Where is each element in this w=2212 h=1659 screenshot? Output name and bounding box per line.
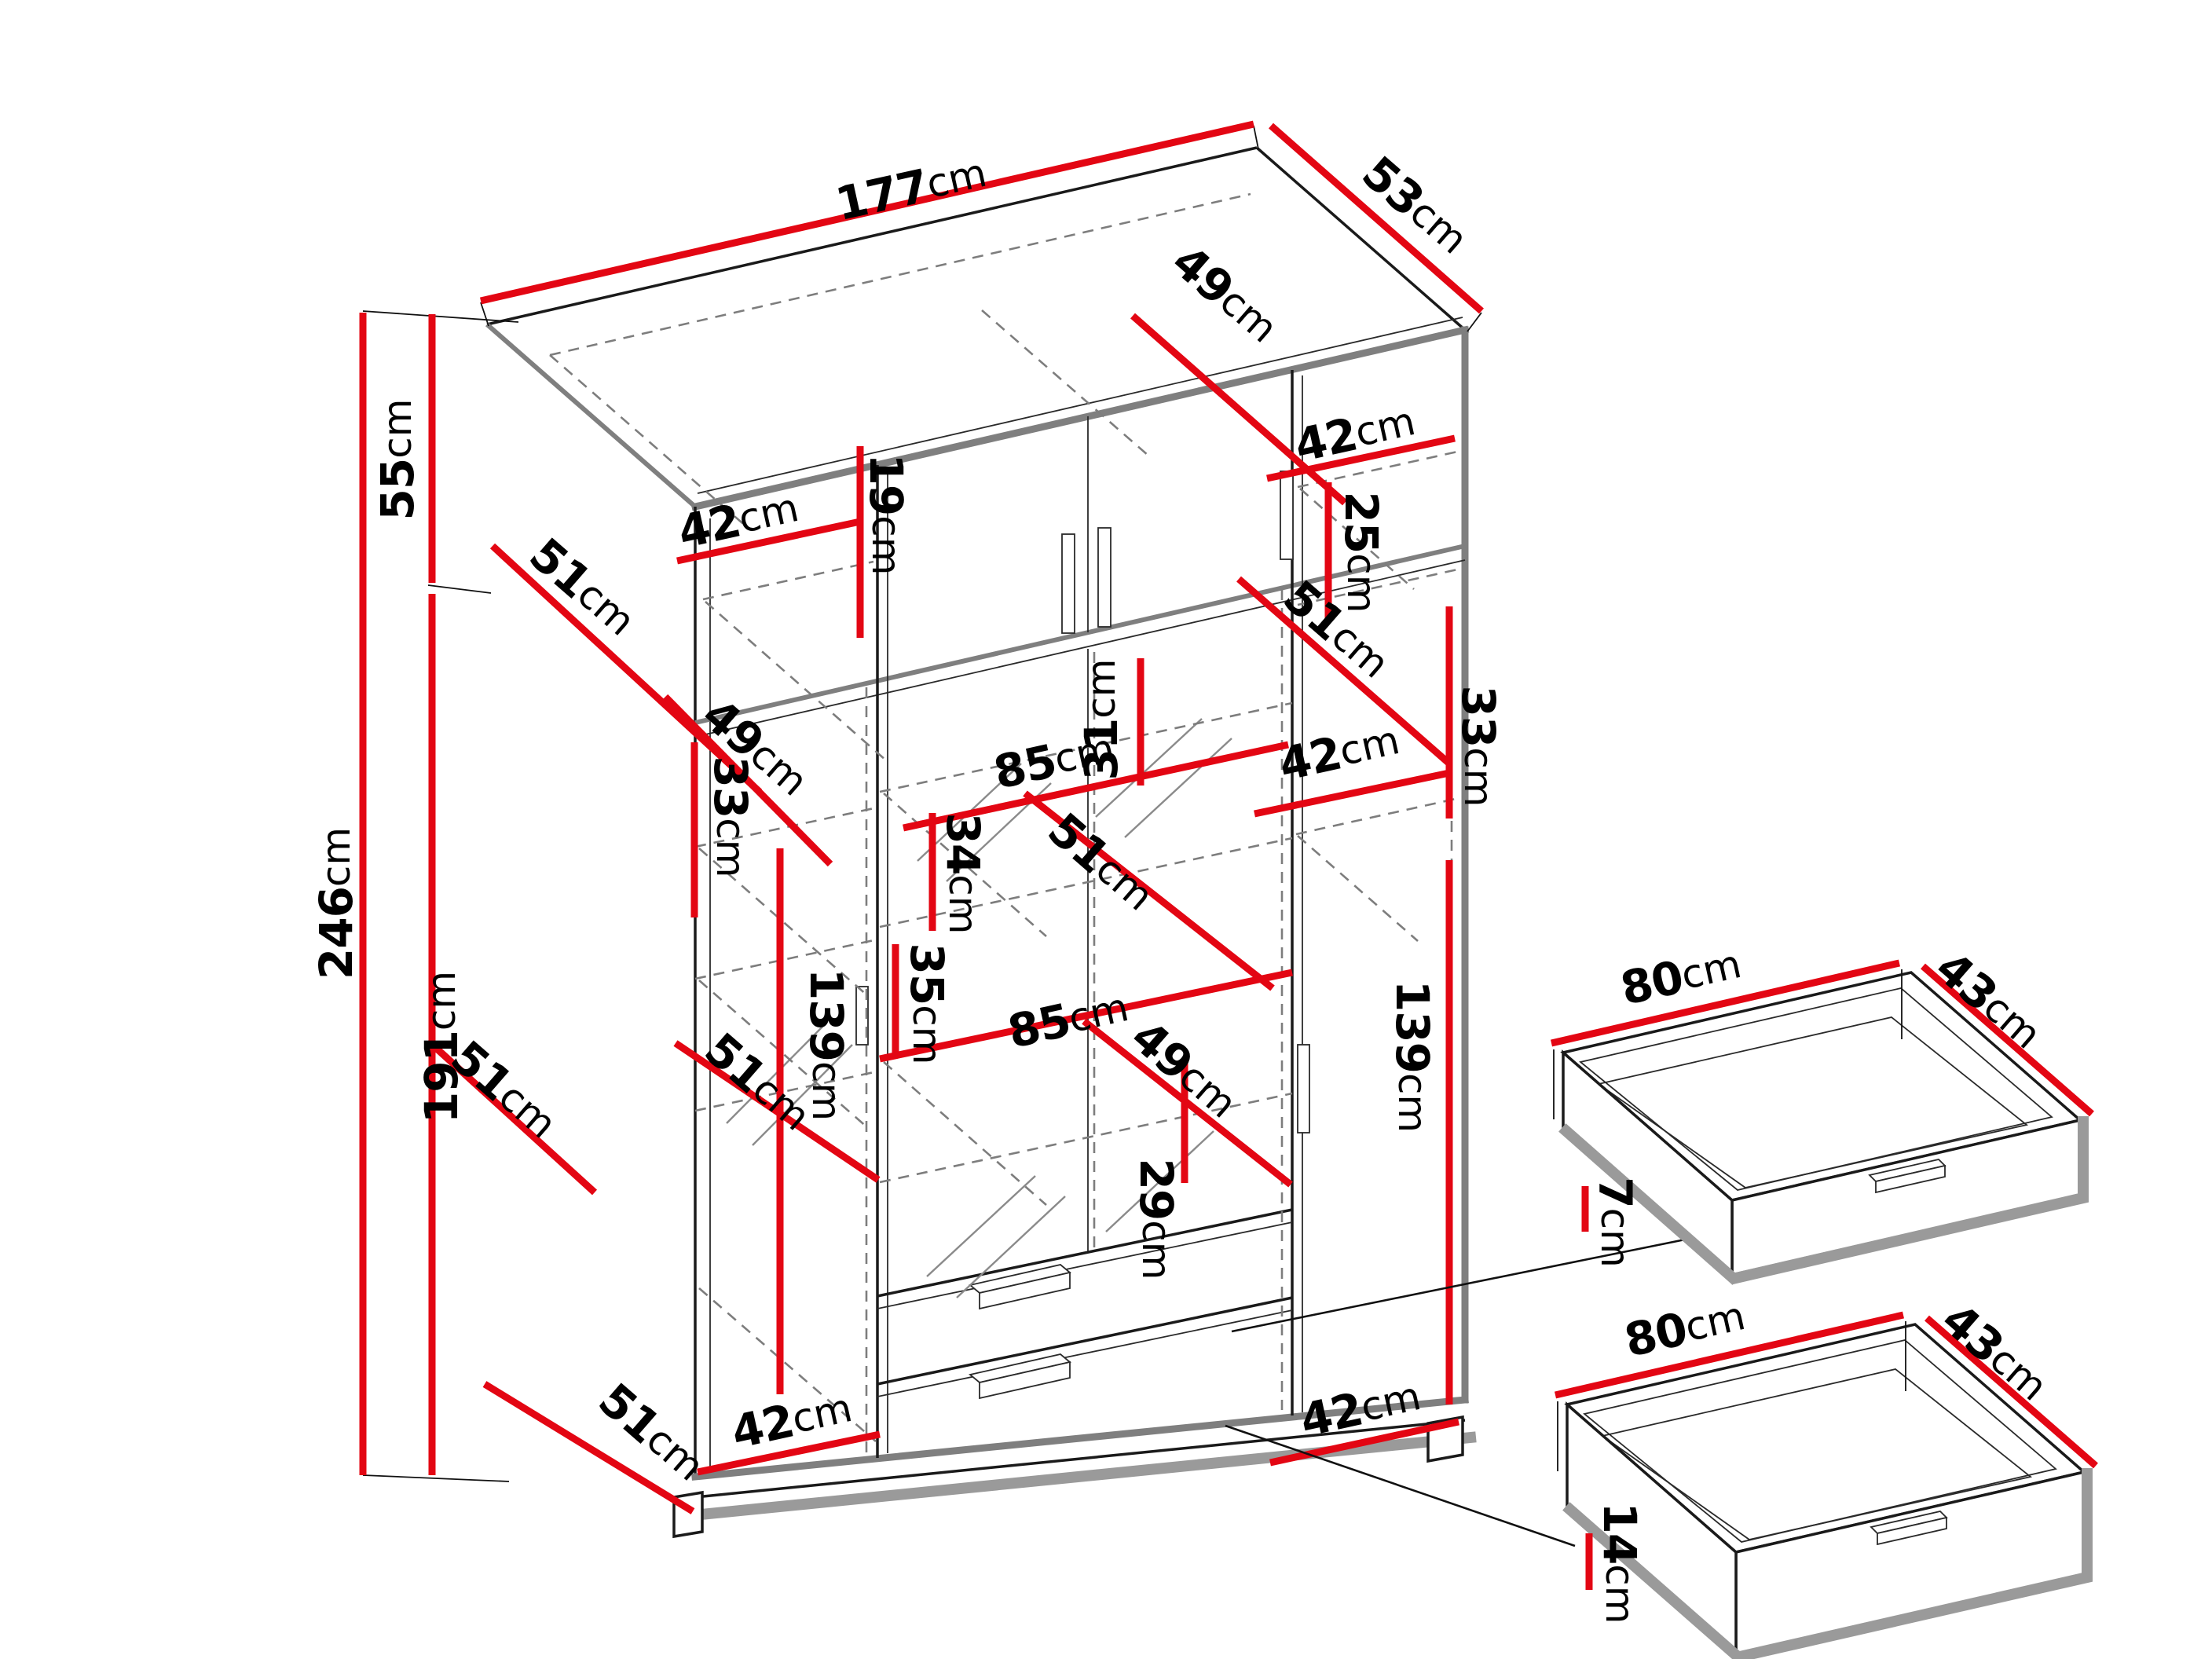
drawer-seam-2-inner <box>877 1310 1292 1397</box>
dim-label-top-right-25: 25cm <box>1335 492 1388 613</box>
dim-label-right-33: 33cm <box>1452 686 1505 808</box>
dim-label-height-top-box: 55cm <box>371 399 424 521</box>
dim-label-left-33: 33cm <box>704 756 757 878</box>
door-handles <box>856 471 1309 1398</box>
dim-label-mid-31: 31cm <box>1075 659 1128 781</box>
dim-label-mid-51: 51cm <box>1038 803 1165 923</box>
dim-label-right-42: 42cm <box>1274 713 1404 792</box>
dim-label-mid-29: 29cm <box>1130 1159 1183 1280</box>
drawer-seam-1 <box>877 1210 1292 1296</box>
dim-label-top-19: 19cm <box>859 454 913 576</box>
middle-right-door-handle <box>1098 528 1111 627</box>
dim-label-height-lower: 191cm <box>415 971 468 1123</box>
dim-label-drawer1-7: 7cm <box>1588 1177 1642 1268</box>
middle-left-door-handle <box>1062 534 1075 633</box>
wardrobe-body <box>363 126 1481 1536</box>
dim-label-height-total: 246cm <box>309 827 363 980</box>
dim-label-drawer2-14: 14cm <box>1593 1503 1646 1624</box>
dim-label-bottom-42: 42cm <box>727 1381 857 1459</box>
dim-label-right-139: 139cm <box>1386 980 1439 1133</box>
furniture-dimension-diagram: 177cm53cm55cm246cm191cm49cm42cm25cm42cm1… <box>0 0 2212 1659</box>
drawer-seam-2 <box>877 1298 1292 1384</box>
top-right-door-handle <box>1280 471 1293 559</box>
dim-label-mid-35: 35cm <box>900 943 954 1065</box>
dim-label-mid-34: 34cm <box>936 813 990 935</box>
lower-right-door-handle <box>1298 1045 1309 1133</box>
